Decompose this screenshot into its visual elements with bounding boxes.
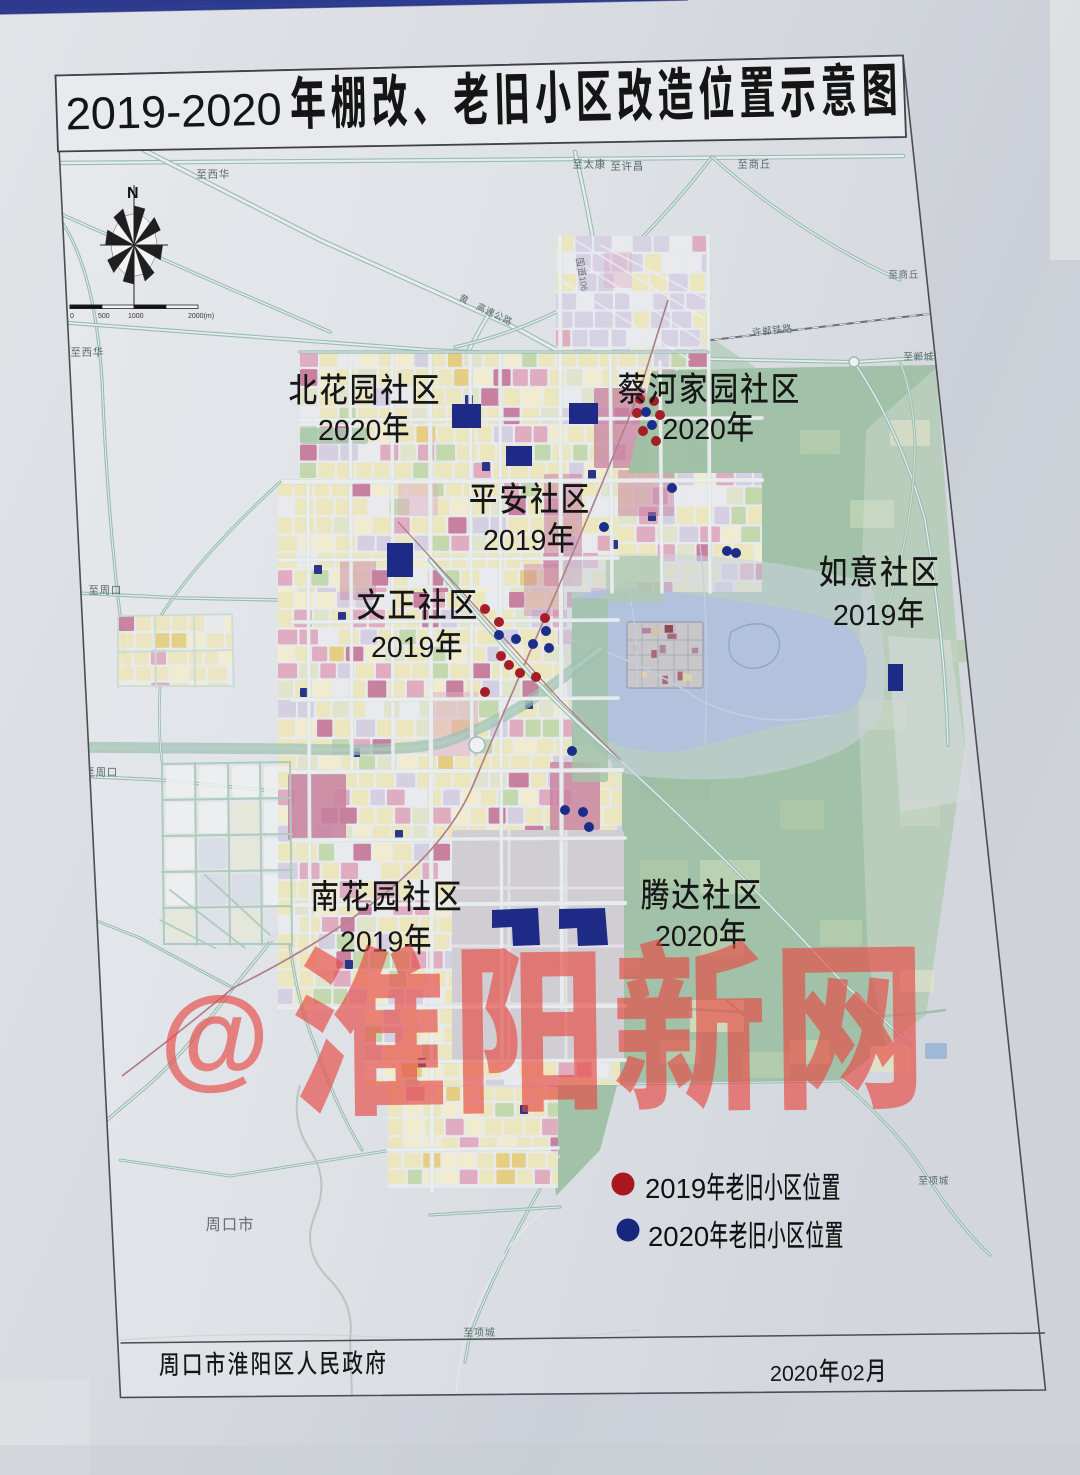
svg-text:2020: 2020: [648, 1221, 709, 1252]
svg-text:N: N: [127, 185, 139, 202]
svg-text:2019: 2019: [371, 632, 434, 664]
svg-text:2020: 2020: [770, 1362, 818, 1386]
svg-text:2019: 2019: [645, 1173, 706, 1204]
svg-text:500: 500: [98, 313, 110, 320]
svg-text:2020: 2020: [655, 921, 718, 953]
svg-text:2000(m): 2000(m): [188, 313, 214, 320]
svg-text:2020: 2020: [318, 415, 381, 447]
svg-text:1000: 1000: [128, 313, 144, 320]
svg-text:2019: 2019: [833, 600, 896, 632]
svg-text:02: 02: [841, 1361, 865, 1385]
svg-text:2020: 2020: [663, 414, 726, 446]
svg-text:2019-2020: 2019-2020: [65, 83, 282, 139]
svg-text:2019: 2019: [483, 525, 546, 557]
svg-text:@: @: [159, 973, 271, 1100]
svg-text:0: 0: [70, 313, 74, 320]
